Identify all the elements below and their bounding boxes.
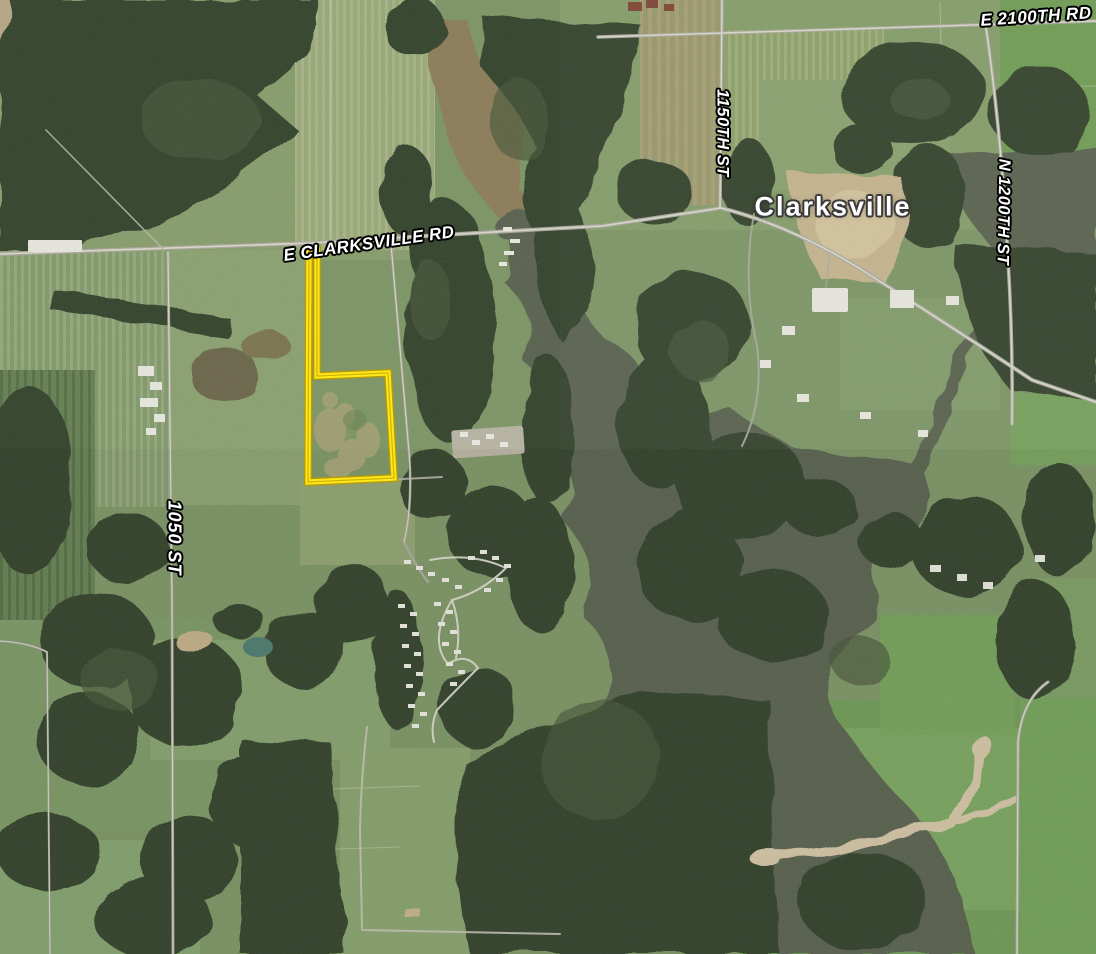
photo-grain-overlay: [0, 0, 1096, 954]
road-label-1050-st: 1050 ST: [164, 500, 185, 575]
road-label-1150th-st: 1150TH ST: [713, 89, 732, 177]
road-label-n-1200th-st: N 1200TH ST: [993, 159, 1014, 266]
town-label-clarksville: Clarksville: [754, 192, 911, 223]
satellite-imagery: [0, 0, 1096, 954]
aerial-map: E 2100TH RD 1150TH ST N 1200TH ST E CLAR…: [0, 0, 1096, 954]
